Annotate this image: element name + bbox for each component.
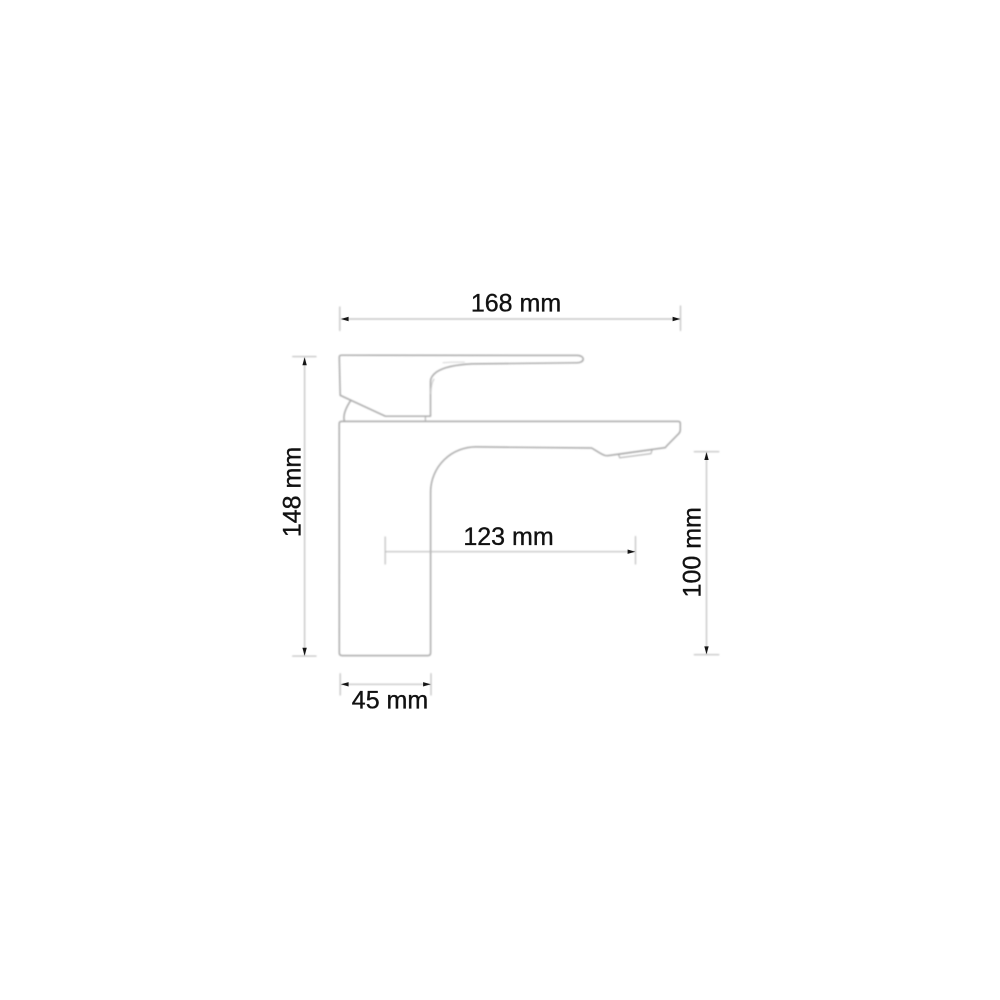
svg-text:123 mm: 123 mm xyxy=(463,523,553,551)
svg-text:168 mm: 168 mm xyxy=(471,290,561,318)
svg-text:100 mm: 100 mm xyxy=(678,507,706,597)
svg-text:148 mm: 148 mm xyxy=(278,447,306,537)
svg-text:45 mm: 45 mm xyxy=(352,687,428,715)
